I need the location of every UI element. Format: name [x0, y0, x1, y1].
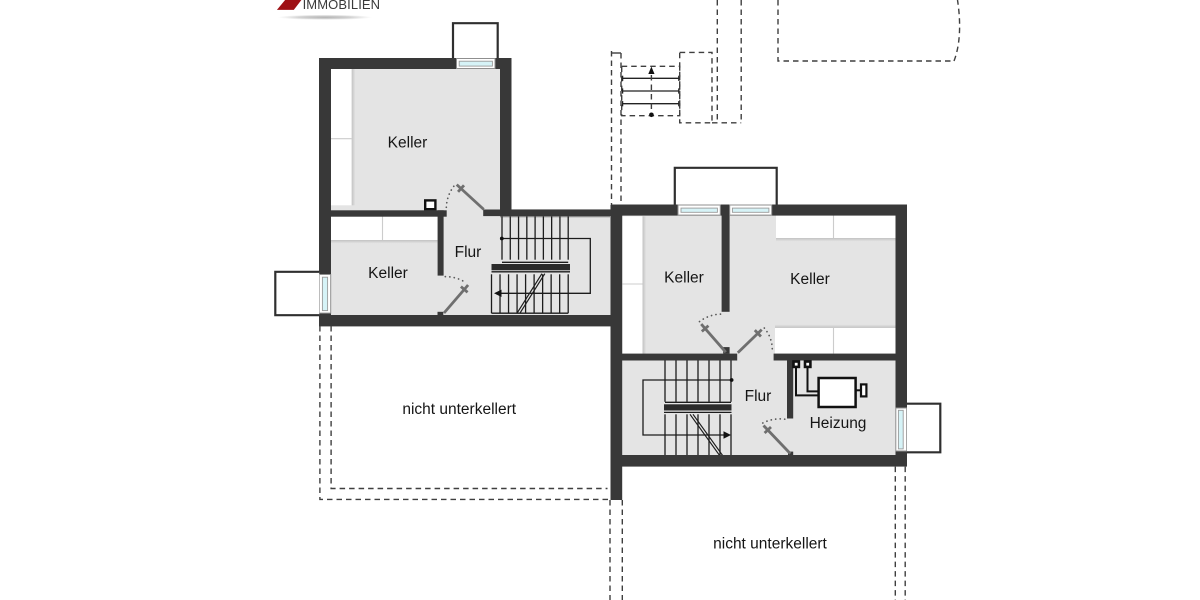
svg-text:Keller: Keller: [368, 265, 408, 282]
svg-text:IMMOBILIEN: IMMOBILIEN: [303, 0, 381, 12]
svg-text:nicht unterkellert: nicht unterkellert: [713, 535, 827, 552]
svg-text:Keller: Keller: [790, 271, 830, 288]
svg-text:nicht unterkellert: nicht unterkellert: [402, 401, 516, 418]
svg-text:Keller: Keller: [664, 269, 704, 286]
svg-text:Flur: Flur: [745, 388, 772, 405]
svg-text:Heizung: Heizung: [810, 415, 867, 432]
svg-text:Flur: Flur: [455, 244, 482, 261]
svg-text:Keller: Keller: [388, 134, 428, 151]
